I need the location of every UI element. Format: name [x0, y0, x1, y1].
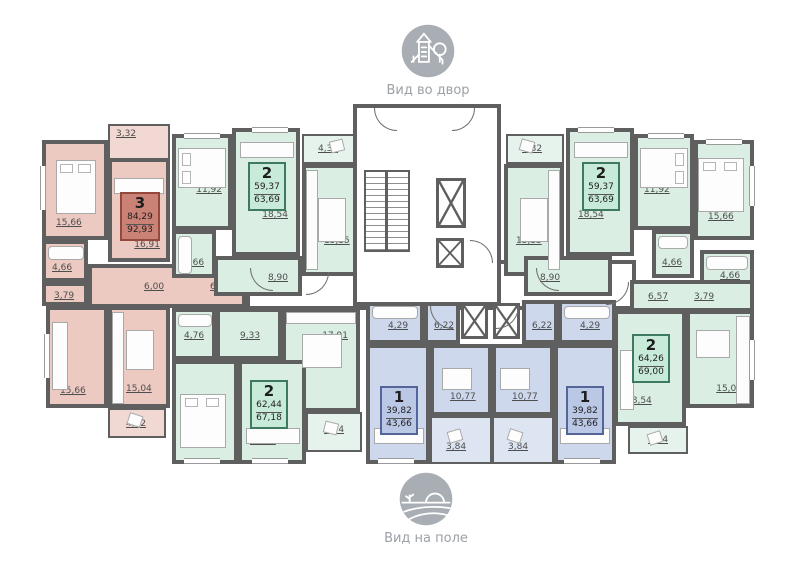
room-pink-hall: 3,79 — [42, 282, 88, 306]
bathtub — [48, 246, 84, 260]
apartment-card-2room-right[interactable]: 2 64,26 69,00 — [632, 334, 670, 383]
window — [564, 458, 600, 464]
sofa — [246, 428, 300, 444]
apartment-living-area: 39,82 — [384, 406, 414, 418]
apartment-rooms-count: 2 — [586, 165, 616, 182]
courtyard-view-label: Вид во двор — [348, 83, 508, 98]
room-area-label: 4,29 — [388, 322, 408, 331]
bathtub — [372, 306, 418, 319]
apartment-card-1room-left[interactable]: 1 39,82 43,66 — [380, 386, 418, 435]
bathtub — [658, 236, 688, 249]
apartment-rooms-count: 3 — [124, 195, 156, 212]
kitchen-counter — [306, 170, 318, 270]
room-area-label: 15,66 — [708, 213, 734, 222]
room-area-label: 15,66 — [56, 219, 82, 228]
room-area-label: 3,84 — [508, 443, 528, 452]
kitchen-counter — [286, 312, 356, 324]
apartment-living-area: 59,37 — [586, 182, 616, 194]
floor-plan: Вид во двор Вид на поле 3,32 15,66 16,91… — [0, 0, 800, 566]
apartment-total-area: 69,00 — [638, 366, 664, 379]
apartment-card-2room-topright[interactable]: 2 59,37 63,69 — [582, 162, 620, 211]
apartment-rooms-count: 1 — [570, 389, 600, 406]
room-pink-balcony-top: 3,32 — [108, 124, 170, 160]
room-area-label: 10,77 — [450, 393, 476, 402]
bathtub — [706, 256, 748, 270]
apartment-card-2room-bottomleft[interactable]: 2 62,44 67,18 — [250, 380, 288, 429]
apartment-living-area: 64,26 — [636, 354, 666, 366]
room-area-label: 3,84 — [446, 443, 466, 452]
dining-table — [442, 368, 472, 390]
apartment-total-area: 67,18 — [256, 412, 282, 425]
vent-shaft-1 — [461, 303, 488, 339]
room-area-label: 10,77 — [512, 393, 538, 402]
apartment-total-area: 43,66 — [386, 418, 412, 431]
bathtub — [178, 314, 212, 327]
apartment-living-area: 62,44 — [254, 400, 284, 412]
bathtub — [178, 236, 192, 274]
room-area-label: 18,54 — [262, 211, 288, 220]
room-area-label: 3,79 — [694, 293, 714, 302]
sofa — [574, 142, 628, 158]
dining-table — [520, 198, 548, 242]
dining-table — [318, 198, 346, 242]
field-view-label: Вид на поле — [346, 531, 506, 546]
room-area-label: 4,66 — [662, 259, 682, 268]
apartment-rooms-count: 2 — [254, 383, 284, 400]
sofa — [52, 322, 68, 390]
room-blue-f-hall: 6,22 — [522, 300, 558, 344]
apartment-card-1room-right[interactable]: 1 39,82 43,66 — [566, 386, 604, 435]
sofa — [240, 142, 294, 158]
window — [578, 127, 614, 133]
apartment-card-3room[interactable]: 3 84,29 92,93 — [120, 192, 160, 241]
apartment-living-area: 84,29 — [124, 212, 156, 224]
window — [184, 458, 220, 464]
elevator-shaft-1 — [436, 178, 466, 228]
window — [252, 127, 288, 133]
kitchen-counter — [112, 312, 124, 404]
apartment-total-area: 63,69 — [254, 194, 280, 207]
dining-table — [500, 368, 530, 390]
room-area-label: 6,22 — [532, 322, 552, 331]
apartment-card-2room-topleft[interactable]: 2 59,37 63,69 — [248, 162, 286, 211]
dining-table — [302, 334, 342, 368]
window — [706, 139, 742, 145]
window — [378, 458, 414, 464]
window — [40, 166, 46, 210]
room-area-label: 15,04 — [126, 385, 152, 394]
dining-table — [696, 330, 730, 358]
courtyard-view-icon — [399, 22, 457, 80]
room-area-label: 4,76 — [184, 332, 204, 341]
field-view-icon — [397, 470, 455, 528]
room-green-c-corridor: 6,57 3,79 — [630, 280, 754, 312]
bed — [178, 148, 226, 188]
apartment-living-area: 59,37 — [252, 182, 282, 194]
room-area-label: 4,66 — [52, 264, 72, 273]
window — [252, 458, 288, 464]
apartment-total-area: 43,66 — [572, 418, 598, 431]
window — [749, 166, 755, 206]
window — [184, 133, 220, 139]
room-area-label: 3,32 — [116, 130, 136, 139]
kitchen-counter — [548, 170, 560, 270]
bed — [698, 158, 744, 212]
room-area-label: 16,91 — [134, 241, 160, 250]
room-area-label: 4,29 — [580, 322, 600, 331]
bathtub — [564, 306, 610, 319]
room-area-label: 6,00 — [144, 283, 164, 292]
apartment-living-area: 39,82 — [570, 406, 600, 418]
apartment-rooms-count: 1 — [384, 389, 414, 406]
window — [749, 340, 755, 380]
elevator-shaft-2 — [436, 238, 464, 268]
room-blue-f-balcony: 3,84 — [492, 416, 554, 464]
apartment-total-area: 92,93 — [126, 224, 154, 237]
room-area-label: 3,79 — [54, 292, 74, 301]
bed — [56, 160, 96, 214]
room-green-d-hall: 9,33 — [216, 308, 282, 360]
window — [648, 133, 684, 139]
room-area-label: 9,33 — [240, 332, 260, 341]
kitchen-counter — [736, 316, 750, 404]
room-area-label: 6,57 — [648, 293, 668, 302]
room-area-label: 18,54 — [578, 211, 604, 220]
apartment-rooms-count: 2 — [252, 165, 282, 182]
window — [44, 334, 50, 378]
staircase-divider — [385, 170, 388, 252]
apartment-total-area: 63,69 — [588, 194, 614, 207]
dining-table — [126, 330, 154, 370]
bed — [180, 394, 226, 448]
apartment-rooms-count: 2 — [636, 337, 666, 354]
bed — [640, 148, 688, 188]
room-green-b-balcony: 4,32 — [506, 134, 564, 164]
